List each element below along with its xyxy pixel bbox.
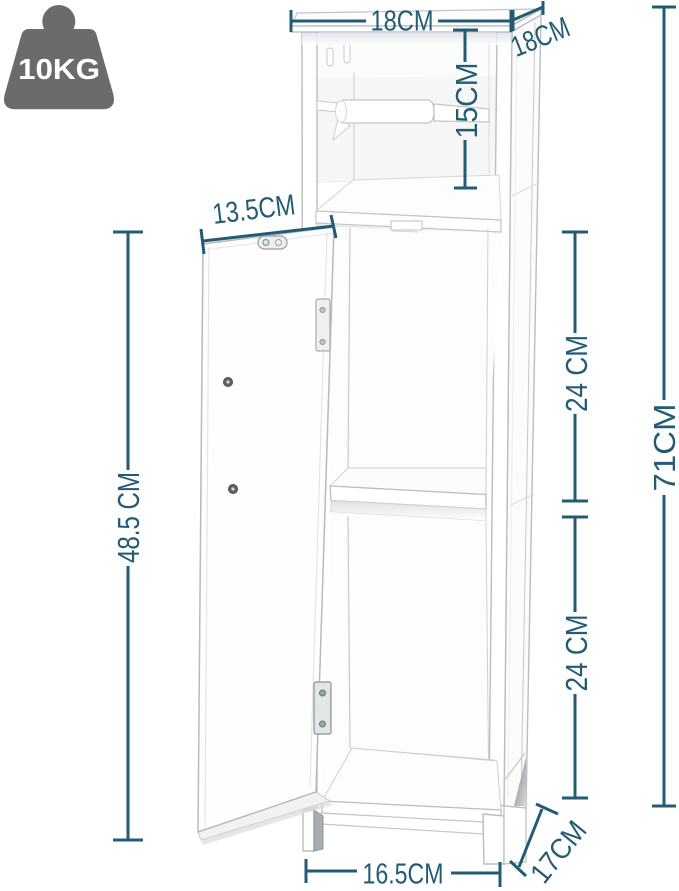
svg-text:18CM: 18CM <box>371 6 434 38</box>
svg-text:15CM: 15CM <box>449 63 484 139</box>
svg-text:71CM: 71CM <box>647 404 679 492</box>
svg-text:16.5CM: 16.5CM <box>363 859 444 891</box>
svg-text:24 CM: 24 CM <box>559 615 594 692</box>
svg-text:24 CM: 24 CM <box>559 335 594 412</box>
svg-text:48.5 CM: 48.5 CM <box>111 472 146 563</box>
svg-text:10KG: 10KG <box>18 54 100 86</box>
